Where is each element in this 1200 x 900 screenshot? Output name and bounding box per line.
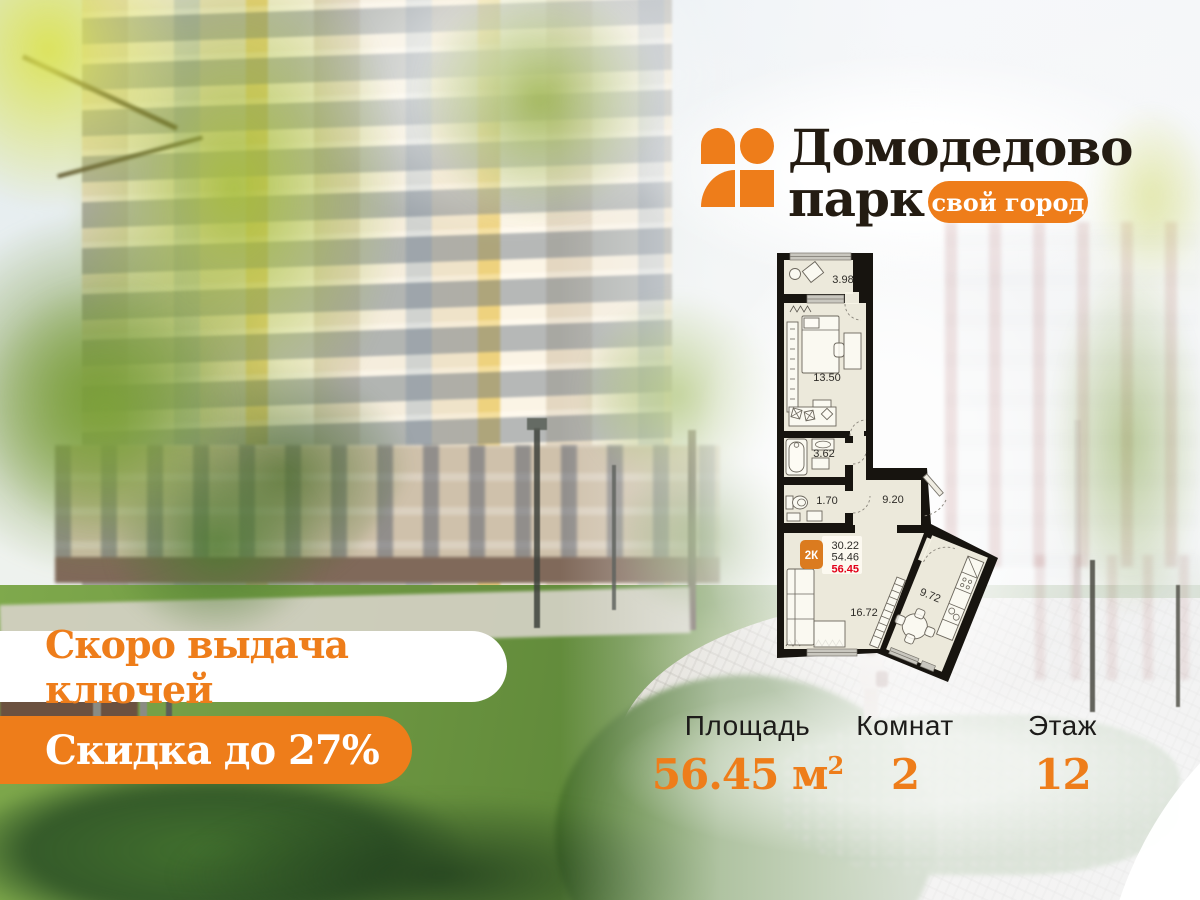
stat-floor: Этаж 12 (1000, 710, 1125, 799)
area-total: 56.45 (831, 564, 859, 576)
complex-name-line1: Домодедово (788, 122, 1108, 173)
stat-floor-value: 12 (1000, 750, 1125, 799)
area-row1: 30.22 (831, 540, 859, 552)
discount-banner-text: Скидка до 27% (45, 727, 379, 774)
stat-rooms-value: 2 (845, 750, 965, 799)
keys-banner: Скоро выдача ключей (0, 631, 507, 702)
stat-rooms-label: Комнат (845, 710, 965, 742)
stat-rooms: Комнат 2 (845, 710, 965, 799)
floor-plan: 9.72 (757, 237, 1023, 703)
promo-banner: Домодедово парк свой город (0, 0, 1200, 900)
room-area-bath: 3.62 (813, 448, 834, 460)
room-area-living: 16.72 (850, 607, 878, 619)
lamp-post-right (1176, 585, 1180, 707)
developer-logo-icon (701, 128, 774, 208)
stat-area-value: 56.45 м2 (650, 750, 845, 799)
logo-tile-square (740, 170, 774, 207)
area-row2: 54.46 (831, 552, 859, 564)
logo-tile-arch (701, 128, 735, 164)
room-area-hall: 9.20 (882, 494, 903, 506)
discount-banner: Скидка до 27% (0, 716, 412, 784)
keys-banner-text: Скоро выдача ключей (45, 622, 507, 712)
stat-area: Площадь 56.45 м2 (650, 710, 845, 799)
lamp-head (527, 418, 547, 430)
logo-tile-quarter (701, 170, 735, 207)
room-area-wc: 1.70 (816, 495, 837, 507)
stat-area-label: Площадь (650, 710, 845, 742)
slogan-badge: свой город (928, 181, 1088, 223)
room-area-loggia: 3.98 (832, 274, 853, 286)
room-hall (853, 436, 921, 525)
lamp-post (534, 428, 540, 628)
logo-tile-circle (740, 128, 774, 164)
unit-type-label: 2К (805, 550, 819, 562)
stat-floor-label: Этаж (1000, 710, 1125, 742)
room-area-bedroom: 13.50 (813, 372, 841, 384)
lamp-post-right (1090, 560, 1095, 712)
